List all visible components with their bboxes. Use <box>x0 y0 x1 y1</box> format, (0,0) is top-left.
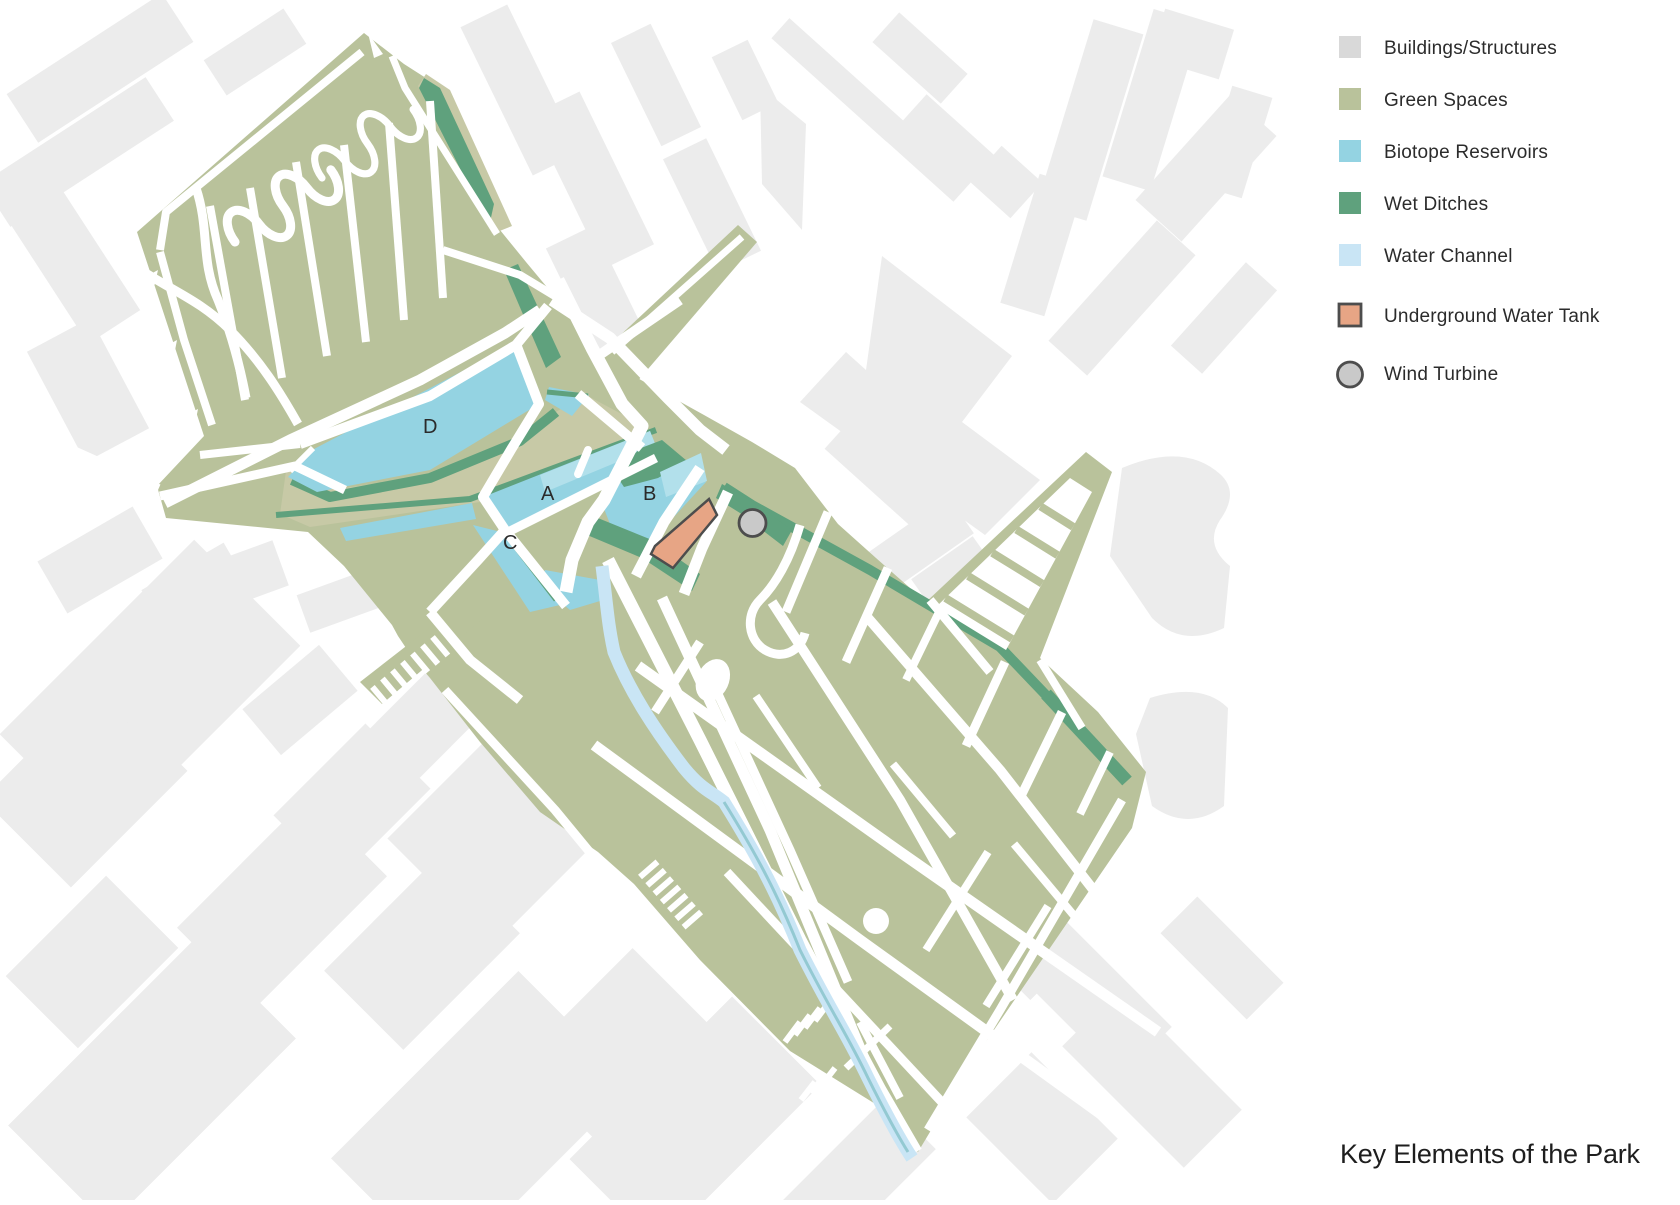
svg-text:Green Spaces: Green Spaces <box>1384 90 1508 111</box>
svg-text:Underground Water Tank: Underground Water Tank <box>1384 306 1600 327</box>
svg-text:Biotope Reservoirs: Biotope Reservoirs <box>1384 142 1548 163</box>
svg-text:Buildings/Structures: Buildings/Structures <box>1384 38 1557 59</box>
svg-text:B: B <box>643 483 656 505</box>
svg-text:C: C <box>503 532 517 554</box>
svg-text:Key Elements of the Park: Key Elements of the Park <box>1340 1139 1641 1169</box>
svg-text:Wind Turbine: Wind Turbine <box>1384 364 1498 385</box>
svg-text:Water Channel: Water Channel <box>1384 246 1513 267</box>
svg-text:A: A <box>541 483 555 505</box>
svg-text:Wet Ditches: Wet Ditches <box>1384 194 1488 215</box>
svg-text:D: D <box>423 416 437 438</box>
